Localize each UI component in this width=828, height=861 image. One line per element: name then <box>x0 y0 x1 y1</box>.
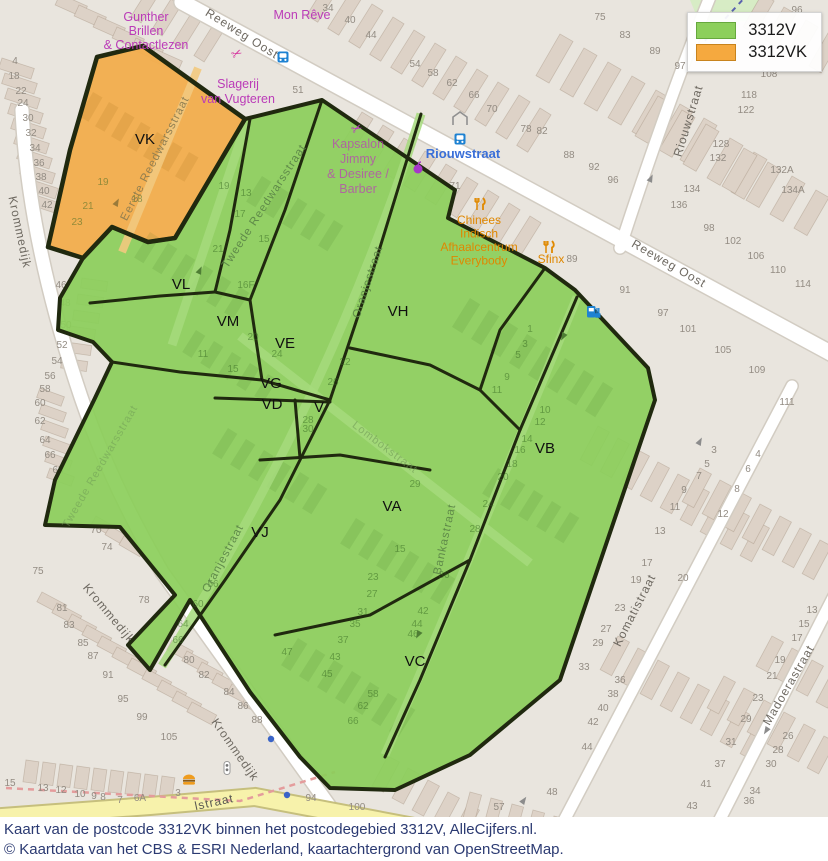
house-number: 7 <box>696 471 702 482</box>
house-number: 91 <box>619 285 631 296</box>
house-number: 99 <box>136 712 148 723</box>
house-number: 38 <box>607 689 619 700</box>
house-number: 4 <box>12 56 18 67</box>
house-number: 21 <box>82 201 94 212</box>
house-number: 12 <box>534 417 546 428</box>
poi-label: Slagerij <box>217 77 259 91</box>
house-number: 70 <box>486 104 498 115</box>
house-number: 100 <box>349 802 366 813</box>
house-number: 9 <box>91 791 97 802</box>
house-number: 17 <box>791 633 803 644</box>
house-number: 17 <box>641 558 653 569</box>
house-number: 19 <box>97 177 109 188</box>
house-number: 92 <box>588 162 600 173</box>
house-number: 29 <box>409 479 421 490</box>
zone-label-VG: VG <box>260 375 282 392</box>
building <box>74 766 90 790</box>
house-number: 74 <box>101 542 113 553</box>
legend-label-3312VK: 3312VK <box>748 43 807 62</box>
house-number: 28 <box>772 745 784 756</box>
poi-label: Indisch <box>460 227 498 241</box>
house-number: 5 <box>515 350 521 361</box>
house-number: 20 <box>677 573 689 584</box>
poi-label: Everybody <box>451 254 508 268</box>
house-number: 11 <box>670 502 681 513</box>
house-number: 31 <box>357 607 369 618</box>
house-number: 43 <box>329 652 341 663</box>
poi-label: Afhaalcentrum <box>440 240 517 254</box>
house-number: 45 <box>321 669 333 680</box>
house-number: 83 <box>63 620 75 631</box>
house-number: 80 <box>183 655 195 666</box>
house-number: 132A <box>770 165 794 176</box>
caption-line1: Kaart van de postcode 3312VK binnen het … <box>4 820 828 840</box>
house-number: 52 <box>56 340 68 351</box>
zone-label-VJ: VJ <box>251 524 269 541</box>
house-number: 33 <box>578 662 590 673</box>
house-number: 62 <box>357 701 369 712</box>
house-number: 15 <box>394 544 406 555</box>
poi-label: Brillen <box>129 24 164 38</box>
house-number: 29 <box>592 638 604 649</box>
zone-label-VA: VA <box>383 498 402 515</box>
house-number: 27 <box>366 589 378 600</box>
house-number: 37 <box>337 635 349 646</box>
house-number: 136 <box>671 200 688 211</box>
poi-label: Jimmy <box>340 152 377 166</box>
house-number: 62 <box>446 78 458 89</box>
house-number: 35 <box>349 619 361 630</box>
building <box>23 760 39 784</box>
house-number: 15 <box>4 778 16 789</box>
house-number: 36 <box>33 158 45 169</box>
house-number: 8 <box>734 484 740 495</box>
house-number: 36 <box>743 796 755 807</box>
house-number: 16F <box>237 280 254 291</box>
house-number: 30 <box>765 759 777 770</box>
house-number: 14 <box>521 434 533 445</box>
house-number: 89 <box>649 46 661 57</box>
house-number: 23 <box>752 693 764 704</box>
house-number: 87 <box>87 651 99 662</box>
house-number: 43 <box>686 801 698 812</box>
house-number: 6 <box>745 464 751 475</box>
house-number: 26 <box>327 377 339 388</box>
house-number: 66 <box>347 716 359 727</box>
house-number: 118 <box>741 90 757 101</box>
house-number: 48 <box>546 787 558 798</box>
house-number: 75 <box>32 566 44 577</box>
house-number: 5 <box>704 459 710 470</box>
legend-item-3312VK: 3312VK <box>696 43 807 62</box>
house-number: 23 <box>71 217 83 228</box>
poi-label: Barber <box>339 182 377 196</box>
house-number: 88 <box>563 150 575 161</box>
house-number: 40 <box>597 703 609 714</box>
house-number: 58 <box>367 689 379 700</box>
house-number: 31 <box>725 737 737 748</box>
bus-icon <box>455 134 466 145</box>
house-number: 1 <box>527 324 533 335</box>
house-number: 60 <box>192 599 204 610</box>
house-number: 85 <box>77 638 89 649</box>
caption-line2: © Kaartdata van het CBS & ESRI Nederland… <box>4 840 828 860</box>
house-number: 38 <box>35 172 47 183</box>
house-number: 105 <box>715 345 732 356</box>
house-number: 17 <box>234 209 246 220</box>
house-number: 109 <box>749 365 766 376</box>
poi-label: & Contactlezen <box>104 38 189 52</box>
house-number: 44 <box>365 30 377 41</box>
house-number: 114 <box>795 279 811 290</box>
house-number: 12 <box>717 509 729 520</box>
house-number: 82 <box>198 670 210 681</box>
house-number: 111 <box>779 397 795 408</box>
house-number: 3 <box>175 788 181 799</box>
zone-label-VM: VM <box>217 313 240 330</box>
house-number: 88 <box>251 715 263 726</box>
house-number: 84 <box>223 687 235 698</box>
zone-label-VH: VH <box>388 303 409 320</box>
house-number: 64 <box>39 435 51 446</box>
house-number: 60 <box>34 398 46 409</box>
house-number: 13 <box>240 188 252 199</box>
house-number: 10 <box>74 789 86 800</box>
house-number: 24 <box>482 499 494 510</box>
house-number: 13 <box>806 605 818 616</box>
poi-label: Kapsalon <box>332 137 384 151</box>
house-number: 21 <box>766 671 778 682</box>
bus-icon <box>278 52 289 63</box>
house-number: 51 <box>292 85 304 96</box>
house-number: 40 <box>38 186 50 197</box>
house-number: 83 <box>619 30 631 41</box>
house-number: 132 <box>710 153 727 164</box>
house-number: 37 <box>714 759 726 770</box>
zone-label-VB: VB <box>535 440 555 457</box>
map-page: 4182224303234363840424648505254565860626… <box>0 0 828 861</box>
house-number: 110 <box>770 265 786 276</box>
house-number: 28 <box>469 524 481 535</box>
house-number: 30 <box>22 113 34 124</box>
poi-label: Riouwstraat <box>426 146 501 161</box>
house-number: 16 <box>514 445 526 456</box>
house-number: 7 <box>117 795 123 806</box>
house-number: 22 <box>15 86 27 97</box>
house-number: 27 <box>600 624 612 635</box>
house-number: 3 <box>522 339 528 350</box>
house-number: 66 <box>468 90 480 101</box>
house-number: 11 <box>492 385 503 396</box>
house-number: 29 <box>740 714 752 725</box>
poi-label: Sfinx <box>538 252 565 266</box>
house-number: 15 <box>258 234 270 245</box>
poi-label: van Vugteren <box>201 92 275 106</box>
house-number: 134A <box>781 185 805 196</box>
house-number: 134 <box>684 184 701 195</box>
poi-label: Mon Rêve <box>274 8 331 22</box>
house-number: 22 <box>339 357 351 368</box>
house-number: 122 <box>738 105 755 116</box>
house-number: 98 <box>703 223 715 234</box>
map-caption: Kaart van de postcode 3312VK binnen het … <box>0 817 828 861</box>
zone-label-VK: VK <box>135 131 155 148</box>
house-number: 8 <box>100 792 106 803</box>
house-number: 97 <box>657 308 669 319</box>
house-number: 75 <box>594 12 606 23</box>
house-number: 23 <box>614 603 626 614</box>
house-number: 19 <box>218 181 230 192</box>
house-number: 26 <box>782 731 794 742</box>
zone-label-VE: VE <box>275 335 295 352</box>
house-number: 66 <box>44 450 56 461</box>
house-number: 30 <box>302 424 314 435</box>
house-number: 58 <box>39 384 51 395</box>
house-number: 32 <box>25 128 37 139</box>
zone-label-V: V <box>314 399 324 416</box>
house-number: 13 <box>37 783 49 794</box>
building <box>108 770 124 794</box>
house-number: 9 <box>681 485 687 496</box>
house-number: 13 <box>654 526 666 537</box>
house-number: 3 <box>711 445 717 456</box>
house-number: 18 <box>8 71 20 82</box>
house-number: 15 <box>227 364 239 375</box>
house-number: 58 <box>427 68 439 79</box>
poi-label: Chinees <box>457 213 501 227</box>
house-number: 78 <box>520 124 532 135</box>
legend-swatch-orange <box>696 44 736 61</box>
house-number: 41 <box>700 779 712 790</box>
house-number: 64 <box>177 619 189 630</box>
house-number: 95 <box>117 694 129 705</box>
house-number: 42 <box>587 717 599 728</box>
house-number: 89 <box>566 254 578 265</box>
house-number: 96 <box>607 175 619 186</box>
house-number: 86 <box>237 701 249 712</box>
house-number: 44 <box>581 742 593 753</box>
house-number: 40 <box>344 15 356 26</box>
marker-dot-icon <box>284 792 290 798</box>
building <box>91 768 107 792</box>
house-number: 19 <box>774 655 786 666</box>
house-number: 47 <box>281 647 293 658</box>
house-number: 11 <box>198 349 209 360</box>
house-number: 81 <box>56 603 68 614</box>
legend-label-3312V: 3312V <box>748 21 796 40</box>
zone-label-VC: VC <box>405 653 426 670</box>
house-number: 6A <box>134 793 147 804</box>
house-number: 24 <box>17 98 29 109</box>
legend-item-3312V: 3312V <box>696 21 807 40</box>
house-number: 20 <box>247 332 259 343</box>
house-number: 15 <box>798 619 810 630</box>
house-number: 18 <box>506 459 518 470</box>
house-number: 42 <box>41 200 53 211</box>
legend: 3312V 3312VK <box>687 12 822 72</box>
house-number: 23 <box>367 572 379 583</box>
zone-label-VL: VL <box>172 276 190 293</box>
traffic-light-icon <box>224 762 230 775</box>
house-number: 97 <box>674 61 686 72</box>
house-number: 78 <box>138 595 150 606</box>
house-number: 91 <box>102 670 114 681</box>
house-number: 9 <box>504 372 510 383</box>
house-number: 102 <box>725 236 742 247</box>
marker-dot-icon <box>268 736 274 742</box>
house-number: 42 <box>417 606 429 617</box>
zone-label-VD: VD <box>262 396 283 413</box>
house-number: 106 <box>748 251 765 262</box>
house-number: 36 <box>614 675 626 686</box>
house-number: 54 <box>51 356 63 367</box>
legend-swatch-green <box>696 22 736 39</box>
house-number: 66 <box>172 635 184 646</box>
house-number: 82 <box>536 126 548 137</box>
house-number: 94 <box>305 793 317 804</box>
house-number: 105 <box>161 732 178 743</box>
house-number: 54 <box>409 59 421 70</box>
poi-label: Gunther <box>123 10 168 24</box>
house-number: 128 <box>713 139 730 150</box>
map-canvas[interactable]: 4182224303234363840424648505254565860626… <box>0 0 828 818</box>
house-number: 101 <box>680 324 697 335</box>
house-number: 4 <box>755 449 761 460</box>
house-number: 12 <box>55 785 67 796</box>
house-number: 34 <box>29 143 41 154</box>
house-number: 56 <box>44 371 56 382</box>
house-number: 57 <box>493 802 505 813</box>
house-number: 21 <box>212 244 224 255</box>
house-number: 20 <box>497 472 509 483</box>
house-number: 62 <box>34 416 46 427</box>
house-number: 10 <box>539 405 551 416</box>
poi-label: & Desiree / <box>327 167 389 181</box>
